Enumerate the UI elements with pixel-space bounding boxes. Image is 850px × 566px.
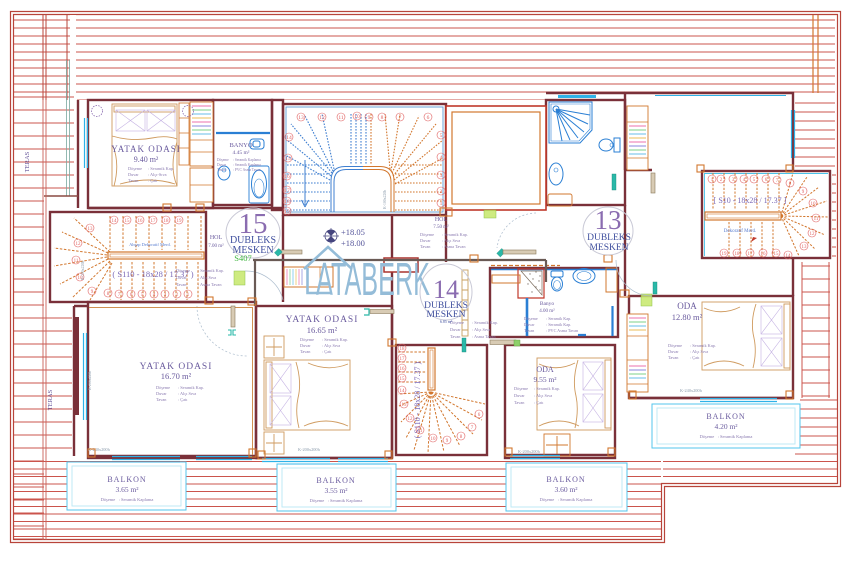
svg-text:14: 14 — [400, 389, 406, 394]
svg-text:: Seramik Kaplama: : Seramik Kaplama — [233, 158, 261, 162]
svg-text:6.85 m²: 6.85 m² — [440, 319, 453, 324]
svg-text:[ S10 - 18x28 / 17.37 ]: [ S10 - 18x28 / 17.37 ] — [714, 196, 787, 205]
svg-text:: Seramik Kap.: : Seramik Kap. — [198, 268, 224, 273]
svg-text:Döşeme: Döşeme — [514, 386, 528, 391]
svg-text:18: 18 — [400, 347, 406, 352]
svg-text:Döşeme: Döşeme — [524, 316, 538, 321]
svg-text:15: 15 — [125, 219, 131, 224]
svg-text:1: 1 — [440, 201, 443, 207]
svg-text:: Alçı-Sıva: : Alçı-Sıva — [148, 172, 167, 177]
svg-text:Duvar: Duvar — [524, 322, 535, 327]
svg-text:MESKEN: MESKEN — [589, 243, 628, 253]
svg-text:9.55 m²: 9.55 m² — [533, 375, 557, 384]
svg-text:Döşeme: Döşeme — [156, 385, 170, 390]
svg-text:12: 12 — [810, 232, 816, 237]
svg-text:: Alçı Sıva: : Alçı Sıva — [178, 391, 196, 396]
svg-text:K-200x220h: K-200x220h — [81, 261, 85, 280]
svg-text:12: 12 — [319, 115, 325, 121]
svg-text:11: 11 — [74, 259, 79, 264]
svg-text:Tavan: Tavan — [176, 282, 187, 287]
svg-text:: Çatı: : Çatı — [148, 178, 158, 183]
svg-text:Tavan: Tavan — [514, 400, 525, 405]
svg-text:18: 18 — [735, 252, 741, 257]
svg-text:14: 14 — [786, 254, 792, 259]
svg-text:: Seramik Kap.: : Seramik Kap. — [534, 386, 560, 391]
svg-text:3.60 m²: 3.60 m² — [554, 485, 578, 494]
svg-text:: Alçı Sıva: : Alçı Sıva — [472, 327, 490, 332]
svg-text:Döşeme: Döşeme — [176, 268, 190, 273]
svg-text:: Seramik Kaplama: : Seramik Kaplama — [233, 163, 261, 167]
svg-text:Döşeme : Seramik Kaplama: Döşeme : Seramik Kaplama — [101, 497, 154, 502]
svg-text:7.50 m²: 7.50 m² — [433, 224, 449, 230]
svg-text:TERAS: TERAS — [47, 389, 54, 410]
svg-text:16: 16 — [400, 367, 406, 372]
svg-text:: Alçı Sıva: : Alçı Sıva — [534, 393, 552, 398]
svg-text:HOL: HOL — [435, 217, 448, 223]
svg-text:: Seramik Kap.: : Seramik Kap. — [148, 166, 174, 171]
svg-text:Döşeme: Döşeme — [420, 232, 434, 237]
svg-text:7: 7 — [399, 115, 402, 121]
svg-text:15: 15 — [774, 252, 780, 257]
svg-text:: Seramik Kap.: : Seramik Kap. — [546, 322, 571, 327]
svg-text:BALKON: BALKON — [546, 475, 585, 484]
svg-text:: Alçı Sıva: : Alçı Sıva — [442, 238, 460, 243]
svg-text:15: 15 — [400, 377, 406, 382]
svg-text:Duvar: Duvar — [300, 343, 311, 348]
svg-text:DUBLEKS: DUBLEKS — [587, 233, 631, 243]
svg-text:: Asma Tavan: : Asma Tavan — [472, 334, 496, 339]
svg-text:16: 16 — [284, 174, 290, 180]
svg-text:3.55 m²: 3.55 m² — [324, 486, 348, 495]
svg-text:19: 19 — [284, 209, 290, 215]
svg-text:16: 16 — [138, 219, 144, 224]
svg-text:K-200x220h: K-200x220h — [88, 371, 92, 390]
svg-text:Döşeme : Seramik Kaplama: Döşeme : Seramik Kaplama — [700, 434, 753, 439]
svg-text:: PVC Asma Tavan: : PVC Asma Tavan — [546, 328, 579, 333]
svg-text:16.65 m²: 16.65 m² — [307, 325, 338, 335]
svg-text:: Alçı Sıva: : Alçı Sıva — [198, 275, 216, 280]
svg-text:2: 2 — [440, 189, 443, 195]
svg-text:Ahşap Dekoratif Merd.: Ahşap Dekoratif Merd. — [129, 242, 171, 247]
svg-text:: PVC Asma Tavan: : PVC Asma Tavan — [233, 168, 261, 172]
svg-text:+18.05: +18.05 — [341, 227, 365, 237]
svg-text:7.00 m²: 7.00 m² — [208, 243, 224, 249]
svg-text:12: 12 — [76, 242, 82, 247]
svg-text:Duvar: Duvar — [668, 349, 679, 354]
svg-text:: Seramik Kap.: : Seramik Kap. — [178, 385, 204, 390]
svg-text:3: 3 — [440, 173, 443, 179]
svg-text:Döşeme: Döşeme — [217, 158, 229, 162]
svg-text:Tavan: Tavan — [524, 328, 535, 333]
svg-text:: Çatı: : Çatı — [178, 397, 188, 402]
svg-text:Tavan: Tavan — [156, 397, 167, 402]
svg-text:: Seramik Kap.: : Seramik Kap. — [322, 337, 348, 342]
svg-text:19: 19 — [722, 252, 728, 257]
svg-text:Döşeme : Seramik Kaplama: Döşeme : Seramik Kaplama — [310, 498, 363, 503]
svg-text:: Alçı Sıva: : Alçı Sıva — [322, 343, 340, 348]
svg-text:Duvar: Duvar — [420, 238, 431, 243]
svg-text:Tavan: Tavan — [420, 244, 431, 249]
svg-text:6: 6 — [427, 115, 430, 121]
svg-text:Tavan: Tavan — [300, 349, 311, 354]
svg-text:13: 13 — [802, 245, 808, 250]
svg-text:17: 17 — [151, 219, 157, 224]
svg-text:ODA: ODA — [536, 365, 554, 374]
svg-text:13: 13 — [595, 205, 622, 235]
svg-text:Döşeme: Döşeme — [128, 166, 142, 171]
svg-text:Duvar: Duvar — [450, 327, 461, 332]
svg-text:10: 10 — [354, 114, 360, 120]
svg-text:10: 10 — [431, 437, 437, 442]
svg-text:12: 12 — [408, 417, 414, 422]
svg-text:Tavan: Tavan — [668, 355, 679, 360]
svg-text:: Seramik Kap.: : Seramik Kap. — [442, 232, 468, 237]
svg-text:Duvar: Duvar — [514, 393, 525, 398]
svg-text:5: 5 — [440, 133, 443, 139]
svg-text:3.65 m²: 3.65 m² — [115, 485, 139, 494]
svg-text:: Alçı Sıva: : Alçı Sıva — [690, 349, 708, 354]
svg-text:+18.00: +18.00 — [341, 238, 365, 248]
svg-text:14: 14 — [433, 275, 459, 304]
svg-text:16.70 m²: 16.70 m² — [161, 371, 192, 381]
svg-text:HOL: HOL — [210, 235, 223, 241]
svg-text:4: 4 — [440, 155, 443, 161]
svg-text:Tavan: Tavan — [450, 334, 461, 339]
svg-text:: Seramik Kap.: : Seramik Kap. — [690, 343, 716, 348]
svg-text:9: 9 — [368, 115, 371, 121]
svg-text:BANYO: BANYO — [229, 142, 252, 149]
svg-text:18: 18 — [164, 219, 170, 224]
svg-text:Döşeme: Döşeme — [300, 337, 314, 342]
svg-text:12.80 m²: 12.80 m² — [672, 312, 703, 322]
svg-text:K-100x220h: K-100x220h — [383, 190, 387, 209]
svg-text:BALKON: BALKON — [107, 475, 146, 484]
svg-text:13: 13 — [402, 403, 408, 408]
svg-text:4.45 m²: 4.45 m² — [233, 150, 250, 156]
svg-text:: Çatı: : Çatı — [690, 355, 700, 360]
svg-text:Duvar: Duvar — [128, 172, 139, 177]
svg-text:K-200x200h: K-200x200h — [518, 449, 541, 454]
svg-text:11: 11 — [418, 429, 423, 434]
svg-text:S407: S407 — [234, 253, 251, 263]
svg-text:Tavan: Tavan — [128, 178, 139, 183]
svg-text:: Asma Tavan: : Asma Tavan — [198, 282, 222, 287]
svg-text:14: 14 — [112, 219, 118, 224]
svg-text:: Çatı: : Çatı — [534, 400, 544, 405]
svg-text:: Çatı: : Çatı — [322, 349, 332, 354]
svg-text:YATAK ODASI: YATAK ODASI — [111, 144, 181, 154]
svg-text:19: 19 — [177, 219, 183, 224]
svg-text:11: 11 — [814, 217, 819, 222]
svg-text:17: 17 — [400, 357, 406, 362]
svg-text:BALKON: BALKON — [316, 476, 355, 485]
svg-text:Duvar: Duvar — [176, 275, 187, 280]
svg-text:Tavan: Tavan — [217, 168, 226, 172]
svg-text:9.40 m²: 9.40 m² — [134, 155, 159, 164]
svg-text:Dekoratif Merd.: Dekoratif Merd. — [724, 229, 757, 234]
svg-text:14: 14 — [286, 135, 292, 141]
svg-text:BALKON: BALKON — [706, 412, 745, 421]
svg-text:Döşeme: Döşeme — [668, 343, 682, 348]
svg-text:Döşeme : Seramik Kaplama: Döşeme : Seramik Kaplama — [540, 497, 593, 502]
svg-text:13: 13 — [88, 227, 94, 232]
svg-text:: Seramik Kap.: : Seramik Kap. — [546, 316, 571, 321]
svg-text:TERAS: TERAS — [24, 151, 31, 172]
svg-text:ATABERK: ATABERK — [316, 253, 430, 305]
svg-text:10: 10 — [811, 202, 817, 207]
svg-text:17: 17 — [748, 252, 754, 257]
svg-text:YATAK ODASI: YATAK ODASI — [286, 315, 359, 325]
svg-text:18: 18 — [284, 199, 290, 205]
svg-text:16: 16 — [761, 252, 767, 257]
svg-text:: Asma Tavan: : Asma Tavan — [442, 244, 466, 249]
svg-text:Banyo: Banyo — [540, 301, 555, 307]
svg-text:13: 13 — [298, 115, 304, 121]
svg-text:K-240x200h: K-240x200h — [680, 388, 703, 393]
svg-text:K-200x200h: K-200x200h — [298, 447, 321, 452]
svg-text:Duvar: Duvar — [156, 391, 167, 396]
svg-text:Duvar: Duvar — [217, 163, 227, 167]
svg-text:: Seramik Kap.: : Seramik Kap. — [472, 320, 498, 325]
svg-text:15: 15 — [285, 156, 291, 162]
svg-text:ODA: ODA — [677, 301, 697, 311]
svg-text:8: 8 — [381, 115, 384, 121]
svg-text:17: 17 — [284, 188, 290, 194]
svg-text:4.00 m²: 4.00 m² — [539, 308, 555, 314]
svg-text:4.20 m²: 4.20 m² — [714, 422, 738, 431]
svg-text:11: 11 — [338, 115, 344, 121]
